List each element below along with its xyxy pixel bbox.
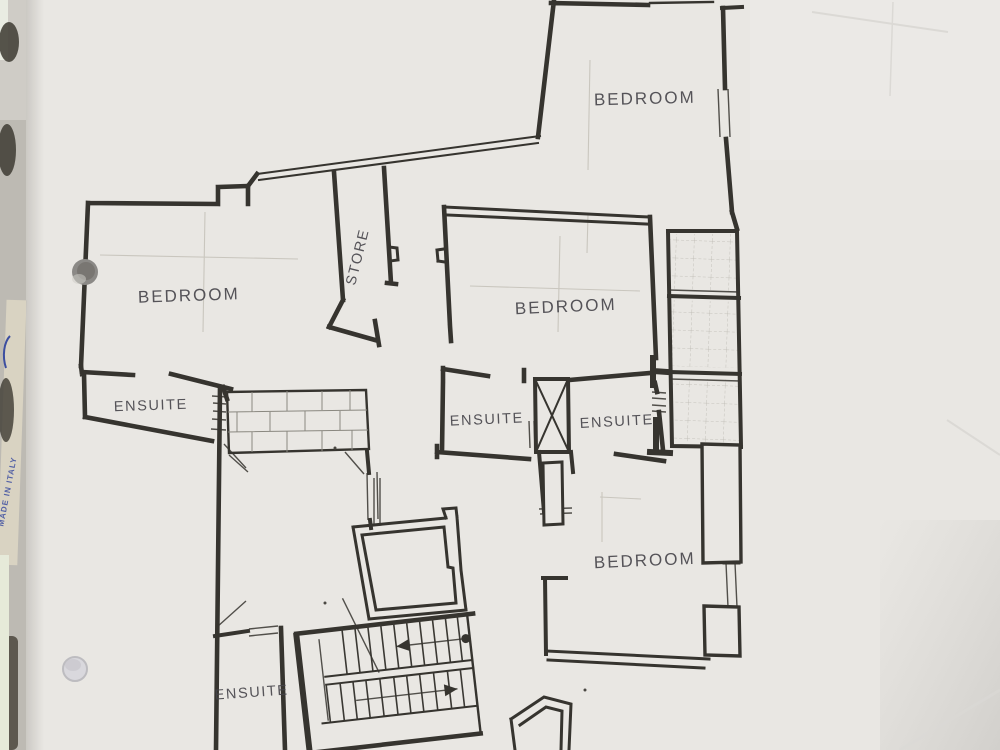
paper-texture bbox=[750, 0, 1000, 750]
bedroom-middle-walls bbox=[437, 207, 668, 385]
stairhead-box bbox=[353, 478, 466, 619]
hallway-diagonal-wall bbox=[248, 136, 540, 186]
left-edge-objects: MADE IN ITALY bbox=[0, 0, 44, 750]
paper-edge-shadow bbox=[26, 0, 44, 750]
bottom-enclosure bbox=[511, 697, 571, 750]
door-swing bbox=[224, 444, 246, 468]
room-label-bedroom-top: BEDROOM bbox=[594, 88, 696, 110]
wardrobe-band bbox=[227, 390, 369, 453]
room-label-ensuite-left: ENSUITE bbox=[114, 397, 189, 416]
bedroom-top-walls bbox=[538, 0, 742, 229]
wardrobe-brick-courses bbox=[228, 390, 368, 452]
room-label-ensuite-middle-left: ENSUITE bbox=[449, 410, 524, 429]
room-label-ensuite-middle-right: ENSUITE bbox=[579, 412, 654, 432]
room-label-store: STORE bbox=[343, 227, 372, 287]
room-labels: BEDROOM BEDROOM BEDROOM BEDROOM ENSUITE … bbox=[114, 88, 696, 704]
window-dressing bbox=[367, 472, 378, 520]
floorplan-photo: BEDROOM BEDROOM BEDROOM BEDROOM ENSUITE … bbox=[0, 0, 1000, 750]
punch-hole-top bbox=[72, 259, 98, 285]
edge-highlight bbox=[0, 555, 9, 750]
floorplan-svg: BEDROOM BEDROOM BEDROOM BEDROOM ENSUITE … bbox=[0, 0, 1000, 750]
stair-break-line bbox=[342, 595, 379, 676]
window-bottom-bedroom bbox=[726, 563, 737, 607]
room-label-bedroom-bottom: BEDROOM bbox=[593, 549, 696, 572]
ceiling-slope-marks bbox=[217, 452, 364, 627]
punch-holes bbox=[63, 259, 98, 681]
room-label-bedroom-middle: BEDROOM bbox=[514, 295, 617, 318]
tiled-terrace bbox=[668, 231, 741, 447]
stair-direction-arrow-down bbox=[355, 683, 458, 706]
punch-hole-bottom bbox=[63, 657, 87, 681]
room-label-ensuite-bottom: ENSUITE bbox=[214, 682, 289, 703]
window-right-ensuite bbox=[652, 392, 666, 412]
window-top-bedroom bbox=[718, 89, 730, 137]
room-label-bedroom-left: BEDROOM bbox=[138, 284, 240, 307]
shaft-cross bbox=[535, 379, 569, 452]
